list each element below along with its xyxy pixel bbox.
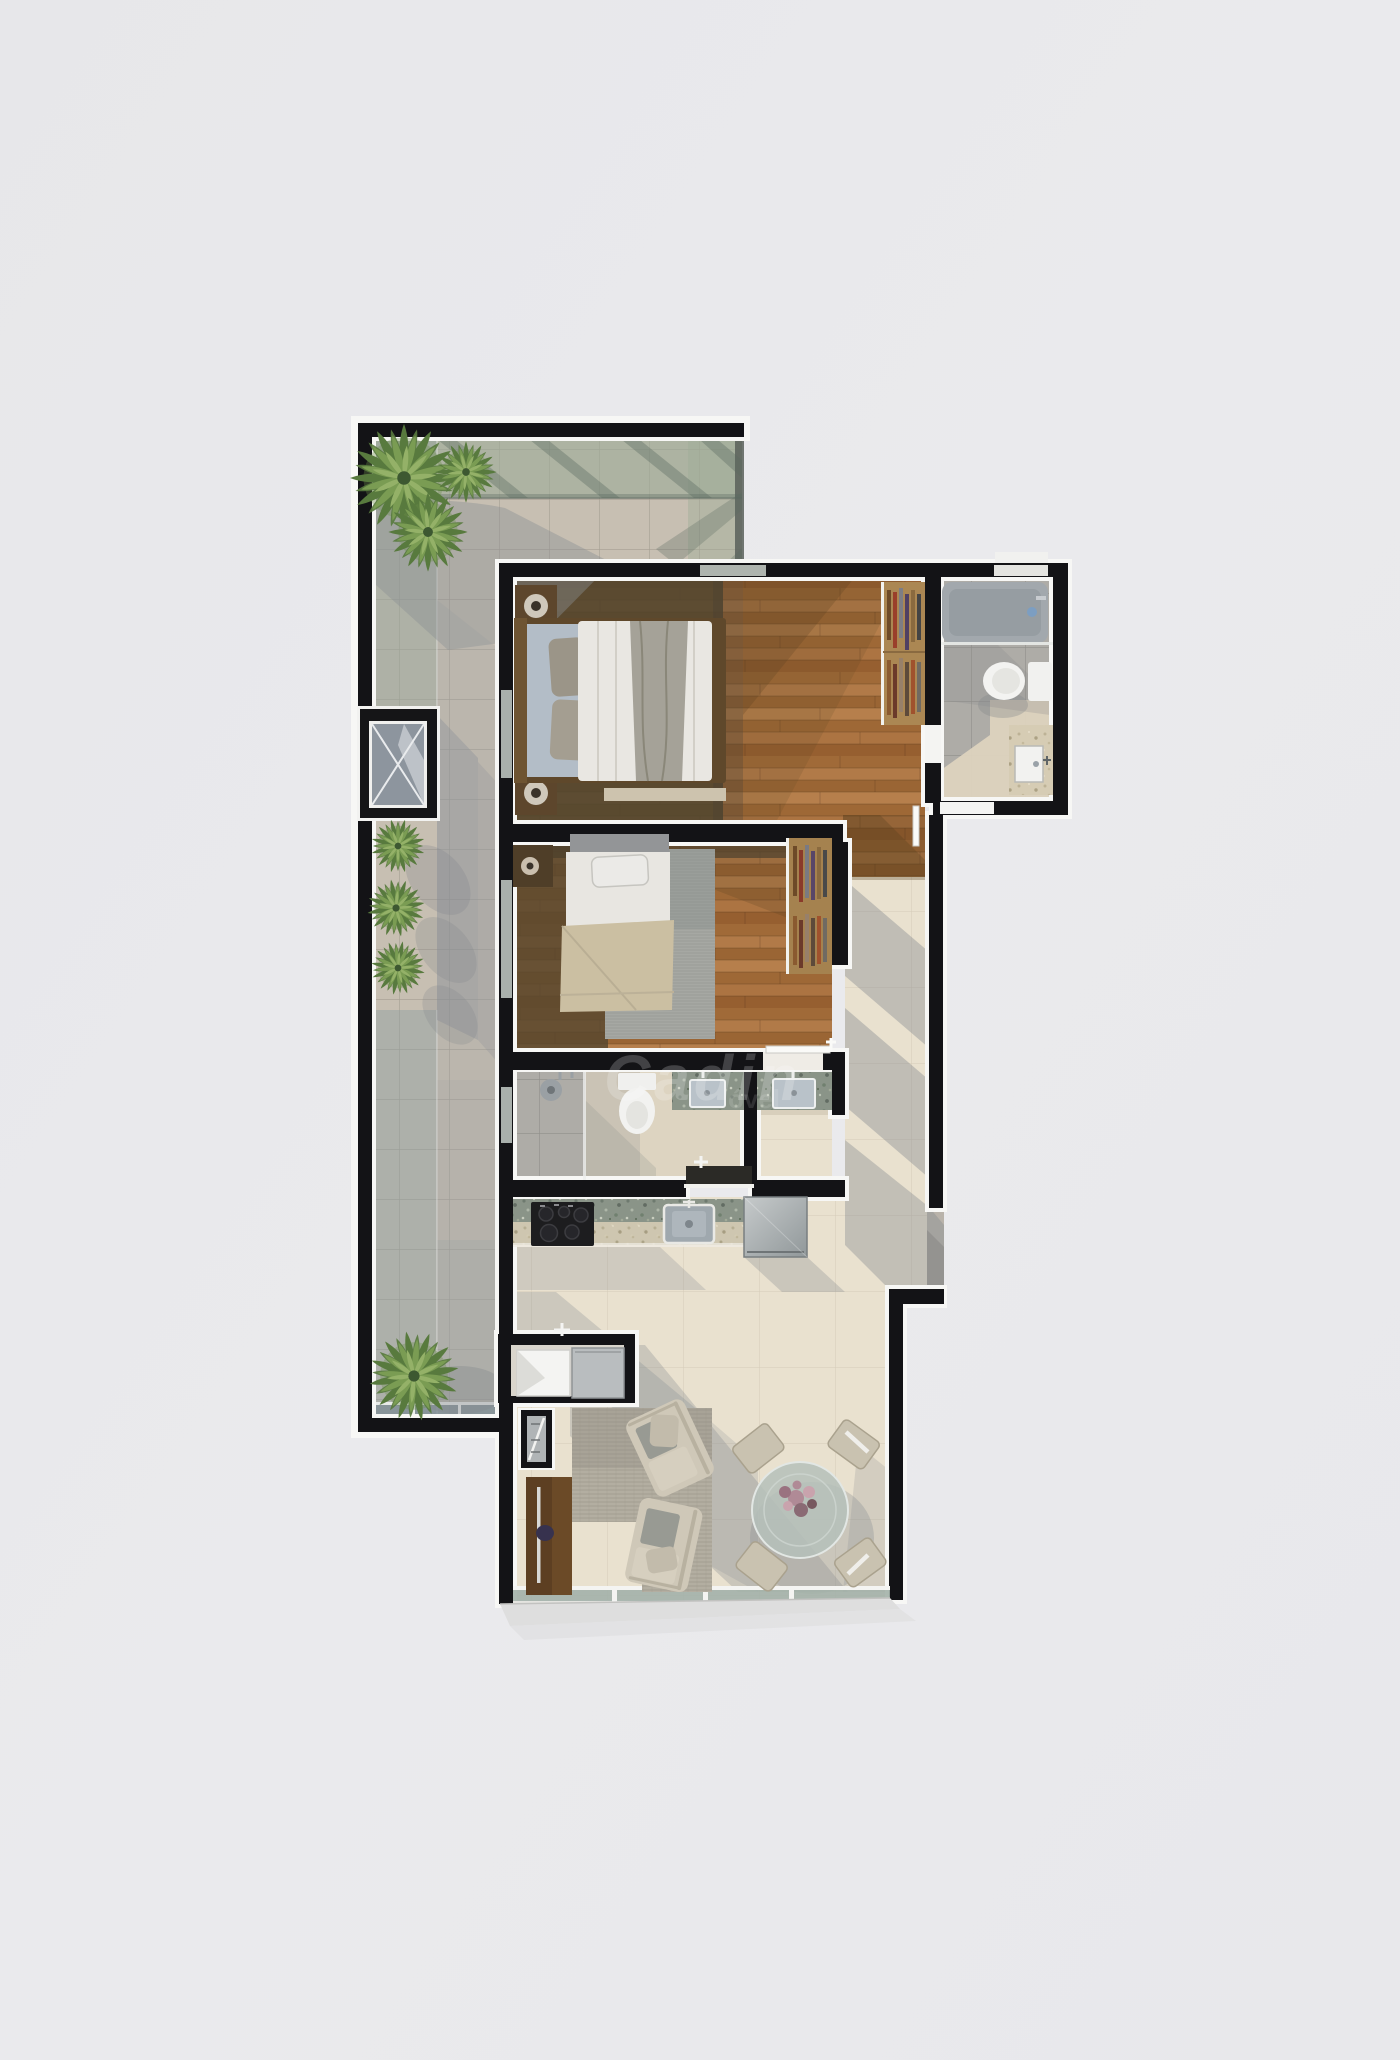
svg-text:óvel: óvel	[728, 1084, 780, 1114]
